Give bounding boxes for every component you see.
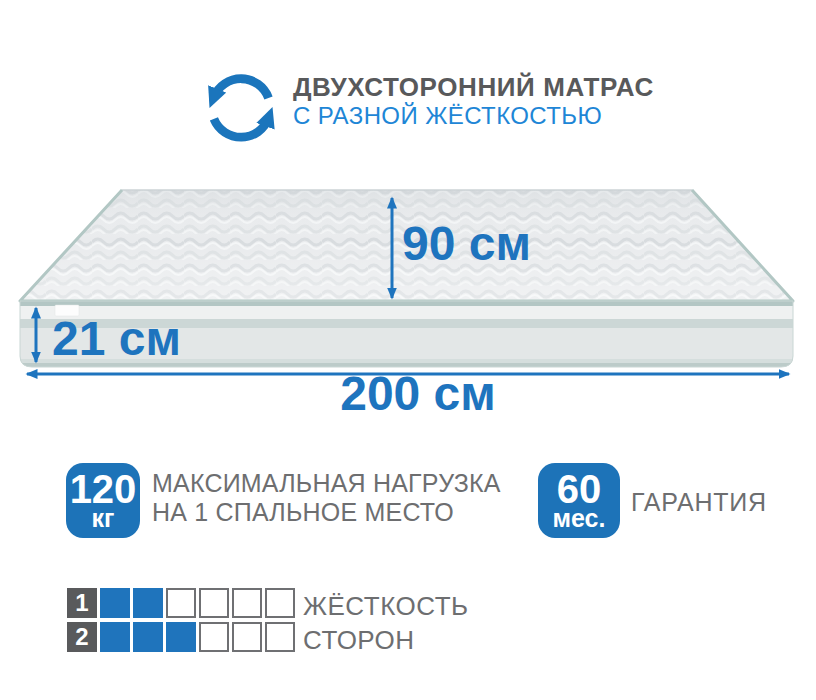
firmness-cell-filled xyxy=(166,622,196,652)
depth-dimension-label: 90 см xyxy=(402,216,531,271)
firmness-rows: 12 xyxy=(67,588,295,656)
warranty-value: 60 xyxy=(557,472,602,506)
mattress-infographic: ДВУХСТОРОННИЙ МАТРАС С РАЗНОЙ ЖЁСТКОСТЬЮ xyxy=(0,0,816,700)
length-dimension-label: 200 см xyxy=(308,366,528,421)
height-dimension-label: 21 см xyxy=(52,311,181,366)
firmness-label-line1: ЖЁСТКОСТЬ xyxy=(303,589,469,623)
firmness-cell-empty xyxy=(199,622,229,652)
firmness-cell-filled xyxy=(100,588,130,618)
max-load-description: МАКСИМАЛЬНАЯ НАГРУЗКА НА 1 СПАЛЬНОЕ МЕСТ… xyxy=(152,469,501,527)
firmness-cell-empty xyxy=(199,588,229,618)
firmness-cell-empty xyxy=(265,588,295,618)
side-number: 1 xyxy=(67,588,97,618)
firmness-cell-filled xyxy=(133,622,163,652)
firmness-cell-filled xyxy=(100,622,130,652)
side-number: 2 xyxy=(67,622,97,652)
firmness-cell-filled xyxy=(133,588,163,618)
max-load-unit: кг xyxy=(92,506,115,530)
warranty-badge: 60 мес. xyxy=(538,463,620,538)
firmness-row: 2 xyxy=(67,622,295,652)
firmness-cell-empty xyxy=(232,622,262,652)
max-load-badge: 120 кг xyxy=(66,463,140,538)
max-load-description-line1: МАКСИМАЛЬНАЯ НАГРУЗКА xyxy=(152,469,501,498)
firmness-row: 1 xyxy=(67,588,295,618)
firmness-label: ЖЁСТКОСТЬ СТОРОН xyxy=(303,589,469,657)
firmness-cell-empty xyxy=(166,588,196,618)
warranty-unit: мес. xyxy=(553,506,606,530)
max-load-value: 120 xyxy=(70,472,137,506)
firmness-cell-empty xyxy=(265,622,295,652)
warranty-label: ГАРАНТИЯ xyxy=(631,488,767,517)
max-load-description-line2: НА 1 СПАЛЬНОЕ МЕСТО xyxy=(152,498,501,527)
firmness-cell-empty xyxy=(232,588,262,618)
firmness-label-line2: СТОРОН xyxy=(303,623,469,657)
